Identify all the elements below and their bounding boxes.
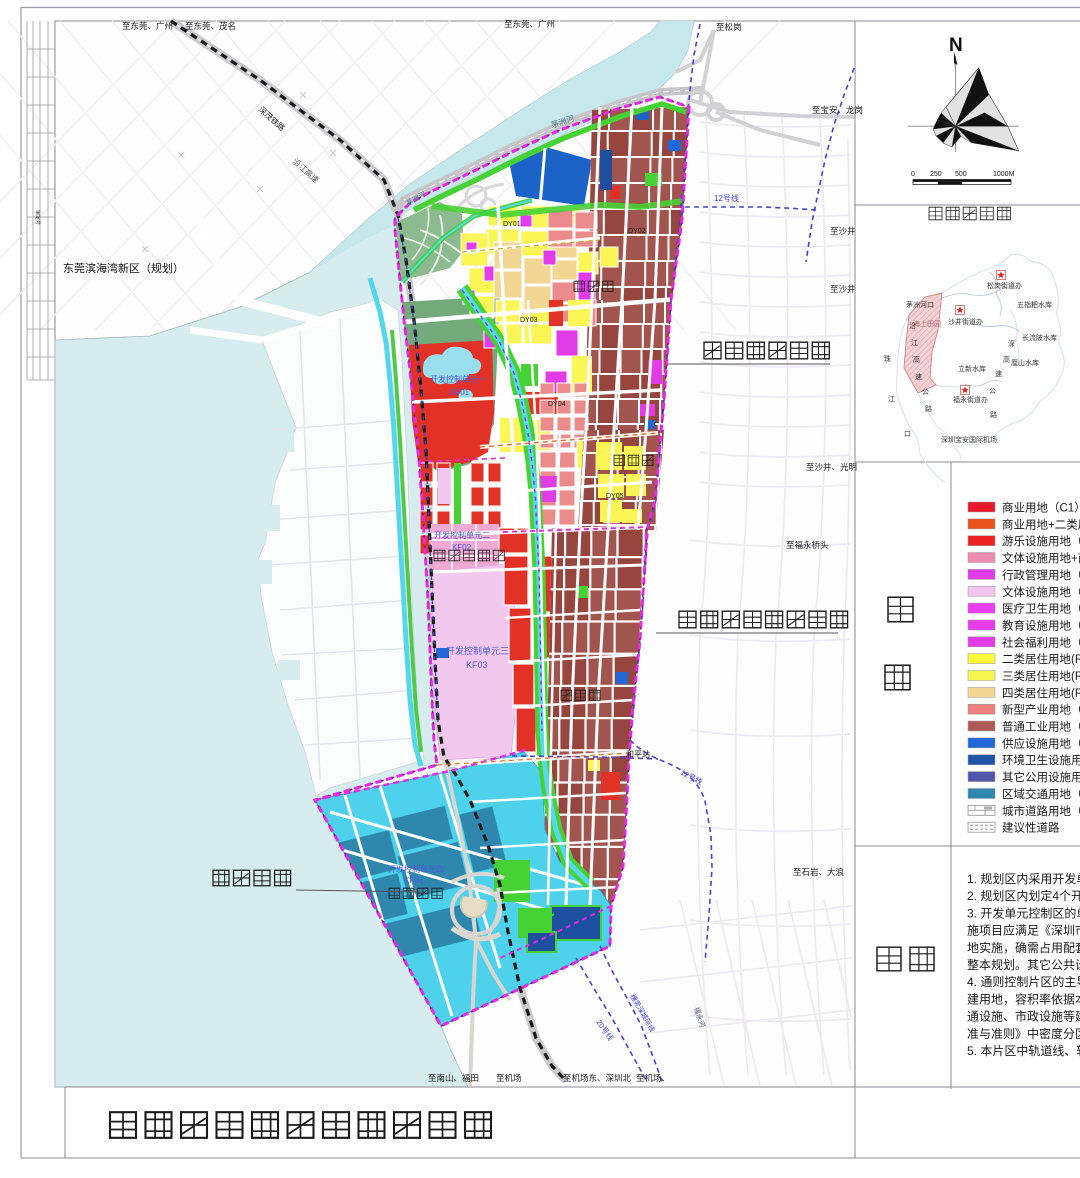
svg-text:2. 规划区内划定4个开发单: 2. 规划区内划定4个开发单 [967,888,1080,903]
svg-text:其它公用设施用地: 其它公用设施用地 [1002,770,1080,784]
svg-text:行政管理用地（G: 行政管理用地（G [1002,568,1080,582]
svg-text:1000M: 1000M [993,171,1015,178]
svg-text:海上田园: 海上田园 [913,319,941,328]
svg-text:茅洲河口: 茅洲河口 [906,300,934,309]
svg-text:高: 高 [1003,355,1010,364]
svg-text:商业用地+二类居住: 商业用地+二类居住 [1002,517,1080,531]
svg-text:审定号: 审定号 [34,210,41,225]
svg-text:供应设施用地（U1: 供应设施用地（U1 [1002,736,1080,750]
svg-text:公: 公 [989,387,996,395]
svg-text:路: 路 [925,404,932,413]
svg-text:游乐设施用地（C5: 游乐设施用地（C5 [1002,535,1080,548]
svg-text:DY04: DY04 [548,401,566,408]
svg-text:5. 本片区中轨道线、轨道: 5. 本片区中轨道线、轨道 [967,1043,1080,1058]
svg-text:DY01: DY01 [503,221,521,228]
svg-text:准与准则》中密度分区: 准与准则》中密度分区 [967,1026,1080,1041]
svg-text:1. 规划区内采用开发单元: 1. 规划区内采用开发单元 [967,871,1080,886]
svg-text:至机场、: 至机场、 [636,1073,670,1083]
svg-text:区域交通用地（S: 区域交通用地（S [1002,787,1080,801]
svg-text:厘山水库: 厘山水库 [1011,358,1039,367]
svg-text:开发控制单元一: 开发控制单元一 [430,374,486,384]
svg-text:KF03: KF03 [466,660,488,670]
svg-text:至沙井: 至沙井 [830,284,856,294]
svg-text:沙井街道办: 沙井街道办 [948,317,983,326]
svg-text:口: 口 [904,430,911,438]
svg-text:KF04: KF04 [404,876,424,885]
svg-text:至东莞、广州: 至东莞、广州 [122,21,173,31]
svg-text:500: 500 [955,171,967,178]
svg-text:立新水库: 立新水库 [958,364,986,373]
svg-text:路: 路 [990,410,997,419]
svg-text:普通工业用地（M: 普通工业用地（M [1002,720,1080,734]
svg-text:至机场东、深圳北: 至机场东、深圳北 [563,1073,632,1083]
svg-text:福永街道办: 福永街道办 [953,395,988,404]
svg-text:开发控制单元二: 开发控制单元二 [434,530,490,540]
svg-text:至南山、福田: 至南山、福田 [428,1073,479,1083]
svg-text:速: 速 [915,373,922,381]
svg-text:至东莞、广州: 至东莞、广州 [504,19,555,29]
svg-text:沿: 沿 [909,321,916,330]
svg-text:教育设施用地（G: 教育设施用地（G [1002,619,1080,633]
svg-text:DY02: DY02 [628,228,646,235]
svg-text:松岗街道办: 松岗街道办 [987,281,1022,290]
svg-text:建用地，容积率依据本: 建用地，容积率依据本 [967,991,1080,1006]
svg-text:至沙井: 至沙井 [830,226,856,236]
svg-text:KF02: KF02 [452,543,472,552]
svg-text:通设施、市政设施等建: 通设施、市政设施等建 [967,1009,1080,1024]
svg-text:公: 公 [922,388,929,396]
svg-text:12号线: 12号线 [714,193,739,203]
svg-text:文体设施用地（G: 文体设施用地（G [1002,585,1080,599]
svg-text:0: 0 [911,171,915,178]
svg-text:开发控制单元四: 开发控制单元四 [388,864,444,874]
svg-text:至东莞、茂名: 至东莞、茂名 [185,21,236,31]
svg-text:3. 开发单元控制区的单: 3. 开发单元控制区的单 [967,905,1080,920]
svg-text:至沙井、光明: 至沙井、光明 [806,462,857,472]
svg-text:五指耙水库: 五指耙水库 [1017,300,1052,309]
svg-text:至福永桥头: 至福永桥头 [786,540,829,550]
svg-text:环境卫生设施用地: 环境卫生设施用地 [1002,753,1080,767]
svg-text:速: 速 [995,370,1002,378]
svg-text:深: 深 [1008,339,1015,348]
svg-text:新型产业用地（M: 新型产业用地（M [1002,703,1080,717]
svg-text:三类居住用地(R3): 三类居住用地(R3) [1002,669,1080,683]
svg-text:高: 高 [913,355,920,364]
svg-text:江: 江 [911,339,918,347]
svg-text:四类居住用地(R4): 四类居住用地(R4) [1002,686,1080,700]
svg-text:至石岩、大浪: 至石岩、大浪 [793,867,845,877]
svg-text:整本规划。其它公共设: 整本规划。其它公共设 [967,957,1080,972]
svg-text:250: 250 [930,171,942,178]
svg-text:文体设施用地+商业: 文体设施用地+商业 [1002,551,1080,565]
svg-text:和平站: 和平站 [626,749,650,759]
svg-text:开发控制单元三: 开发控制单元三 [446,645,509,656]
svg-text:至松岗: 至松岗 [716,22,742,32]
svg-text:施项目应满足《深圳市: 施项目应满足《深圳市 [967,923,1080,938]
svg-text:DY03: DY03 [520,317,538,324]
svg-text:珠: 珠 [884,354,891,363]
svg-text:建议性道路: 建议性道路 [1002,821,1060,835]
svg-text:至机场: 至机场 [496,1073,522,1083]
svg-text:城市道路用地（S: 城市道路用地（S [1002,804,1080,818]
svg-text:4. 通则控制片区的主导: 4. 通则控制片区的主导 [967,974,1080,989]
svg-text:医疗卫生用地（G: 医疗卫生用地（G [1002,602,1080,616]
svg-text:二类居住用地(R2): 二类居住用地(R2) [1002,652,1080,666]
svg-text:长流陂水库: 长流陂水库 [1022,333,1057,342]
svg-text:社会福利用地（G: 社会福利用地（G [1002,635,1080,649]
svg-text:深圳宝安国际机场: 深圳宝安国际机场 [941,435,997,444]
svg-text:地实施，确需占用配套: 地实施，确需占用配套 [967,940,1080,955]
svg-text:江: 江 [888,395,895,403]
svg-text:N: N [949,35,963,56]
svg-text:东莞滨海湾新区（规划）: 东莞滨海湾新区（规划） [63,261,184,275]
svg-text:KF01: KF01 [450,388,470,397]
svg-text:商业用地（C1）: 商业用地（C1） [1002,501,1080,515]
svg-text:DY05: DY05 [606,493,624,500]
